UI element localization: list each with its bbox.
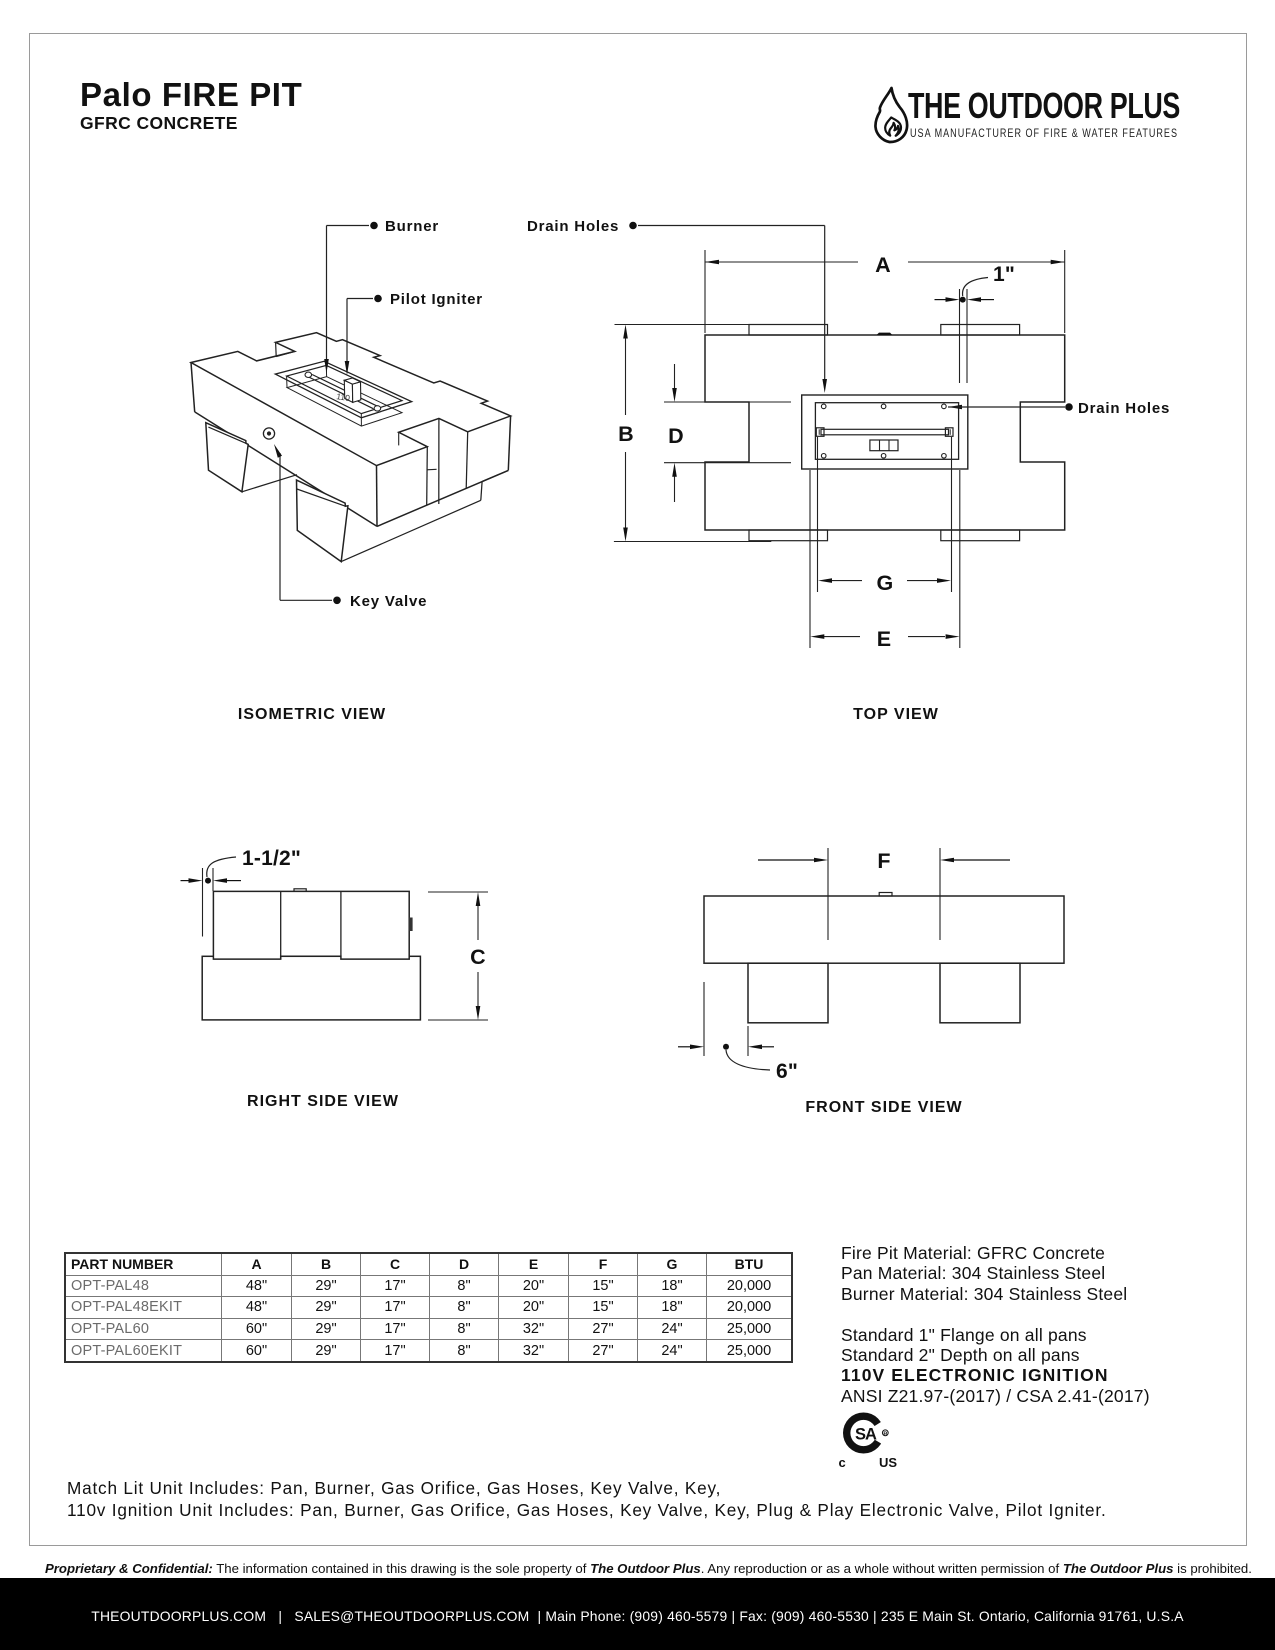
svg-text:A: A (875, 253, 891, 277)
svg-text:Burner: Burner (385, 218, 439, 235)
svg-text:US: US (879, 1455, 897, 1470)
svg-text:R: R (883, 1431, 887, 1437)
svg-text:ISOMETRIC VIEW: ISOMETRIC VIEW (238, 706, 386, 723)
svg-text:Pilot Igniter: Pilot Igniter (390, 291, 483, 308)
svg-text:B: B (618, 422, 634, 446)
svg-text:Key Valve: Key Valve (350, 593, 427, 610)
svg-text:E: E (877, 627, 892, 651)
svg-text:G: G (877, 571, 894, 595)
svg-text:TOP VIEW: TOP VIEW (853, 706, 939, 723)
svg-text:SA: SA (855, 1426, 877, 1444)
svg-text:110: 110 (336, 391, 351, 403)
svg-text:FRONT SIDE VIEW: FRONT SIDE VIEW (805, 1099, 962, 1116)
svg-text:1-1/2": 1-1/2" (242, 847, 301, 870)
svg-text:6": 6" (776, 1060, 798, 1083)
svg-text:1": 1" (993, 263, 1015, 286)
svg-text:D: D (668, 424, 684, 448)
svg-text:Drain Holes: Drain Holes (527, 218, 619, 235)
svg-text:RIGHT SIDE VIEW: RIGHT SIDE VIEW (247, 1093, 399, 1110)
svg-text:C: C (470, 945, 486, 969)
svg-text:F: F (877, 849, 890, 873)
svg-text:Drain Holes: Drain Holes (1078, 400, 1170, 417)
svg-text:c: c (839, 1455, 846, 1470)
